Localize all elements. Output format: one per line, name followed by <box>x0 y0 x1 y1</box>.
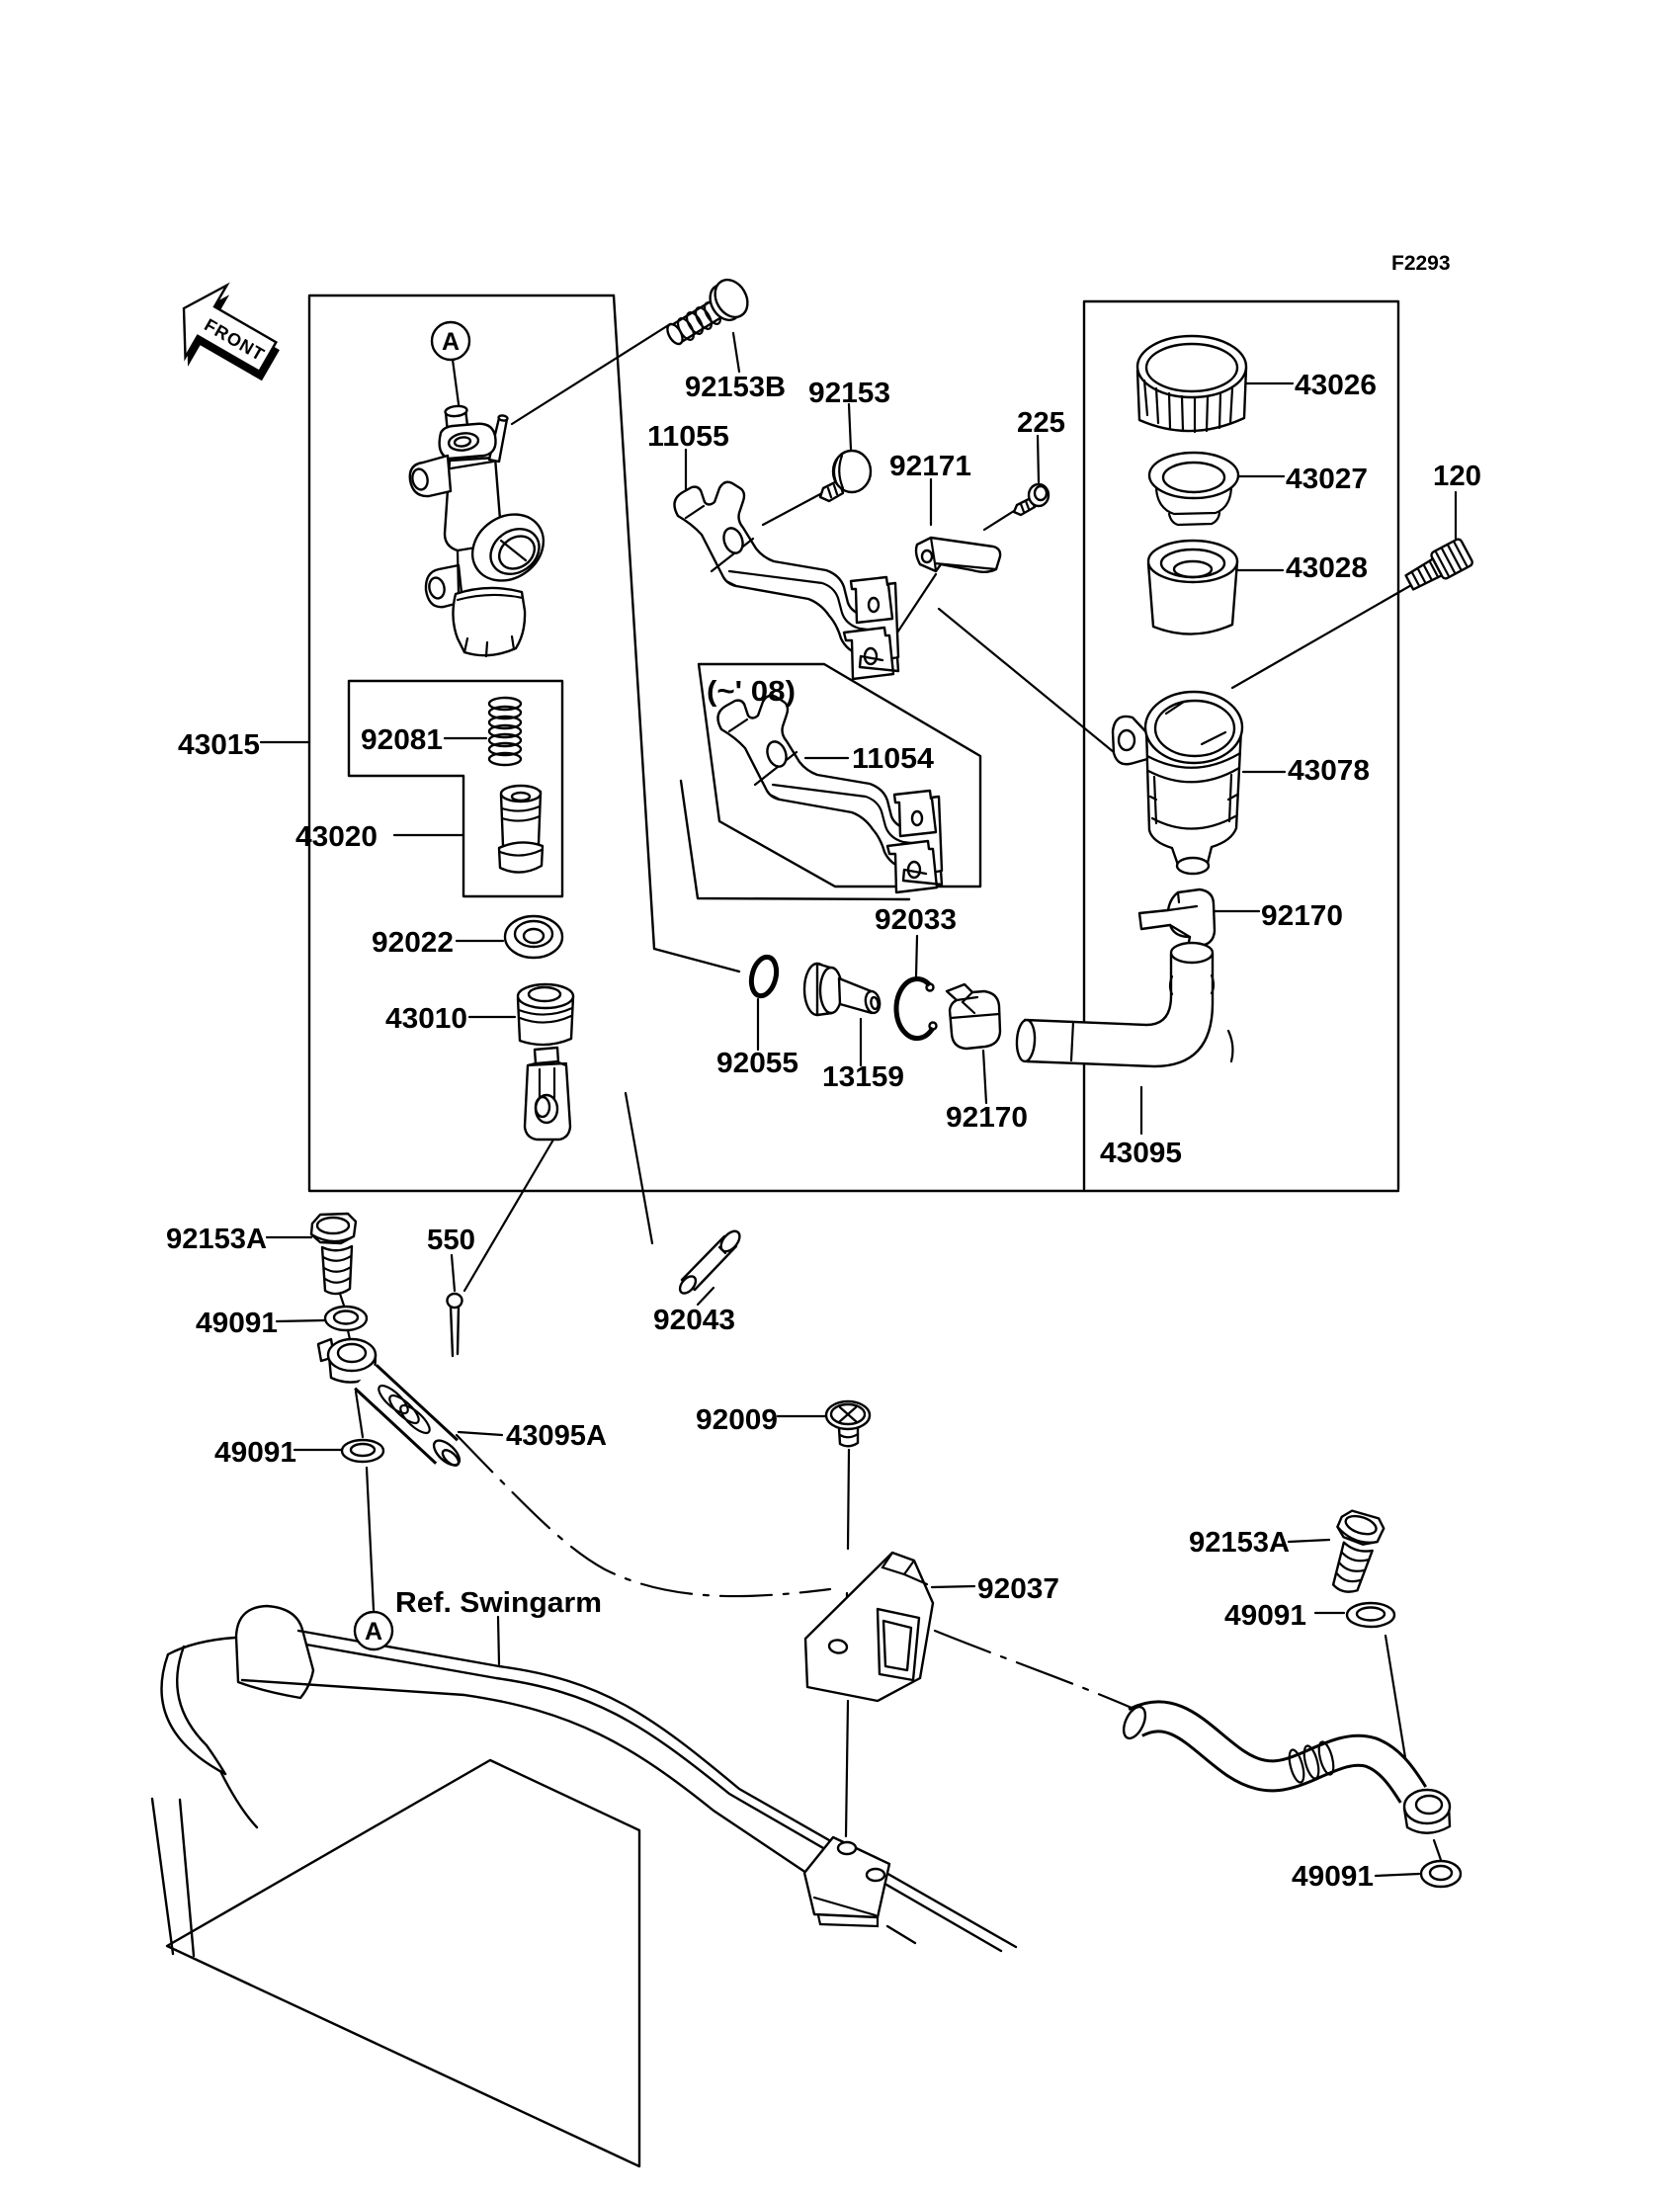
svg-text:43026: 43026 <box>1295 370 1377 401</box>
svg-text:A: A <box>442 328 460 356</box>
svg-text:43095A: 43095A <box>506 1420 607 1452</box>
svg-text:Ref. Swingarm: Ref. Swingarm <box>395 1587 602 1619</box>
svg-text:92171: 92171 <box>889 451 971 482</box>
svg-text:13159: 13159 <box>822 1061 904 1093</box>
svg-text:43028: 43028 <box>1286 552 1368 584</box>
svg-text:(~' 08): (~' 08) <box>707 676 796 708</box>
svg-text:92055: 92055 <box>716 1048 798 1079</box>
svg-text:43095: 43095 <box>1100 1138 1182 1169</box>
svg-text:49091: 49091 <box>1224 1600 1306 1632</box>
svg-text:43027: 43027 <box>1286 464 1368 495</box>
svg-text:550: 550 <box>427 1225 475 1256</box>
svg-text:225: 225 <box>1017 407 1065 439</box>
svg-text:92081: 92081 <box>361 724 443 756</box>
svg-text:43078: 43078 <box>1288 755 1370 787</box>
svg-text:92043: 92043 <box>653 1305 735 1336</box>
svg-text:11054: 11054 <box>852 743 934 775</box>
svg-text:A: A <box>365 1618 382 1646</box>
svg-text:92037: 92037 <box>977 1573 1059 1605</box>
svg-text:120: 120 <box>1433 461 1481 492</box>
svg-text:92153B: 92153B <box>685 372 786 403</box>
svg-text:F2293: F2293 <box>1391 252 1451 275</box>
svg-text:92170: 92170 <box>946 1102 1028 1134</box>
svg-text:92033: 92033 <box>875 904 957 936</box>
svg-text:43020: 43020 <box>295 821 378 853</box>
svg-text:49091: 49091 <box>1292 1861 1374 1893</box>
svg-text:11055: 11055 <box>647 421 729 453</box>
svg-text:92022: 92022 <box>372 927 454 959</box>
svg-text:49091: 49091 <box>196 1308 278 1339</box>
svg-text:92170: 92170 <box>1261 900 1343 932</box>
svg-text:92153A: 92153A <box>166 1224 267 1255</box>
svg-text:43010: 43010 <box>385 1003 467 1035</box>
svg-text:92153: 92153 <box>808 378 890 409</box>
svg-text:49091: 49091 <box>214 1437 296 1469</box>
svg-text:43015: 43015 <box>178 729 260 761</box>
svg-text:92153A: 92153A <box>1189 1527 1290 1559</box>
svg-text:92009: 92009 <box>696 1404 778 1436</box>
